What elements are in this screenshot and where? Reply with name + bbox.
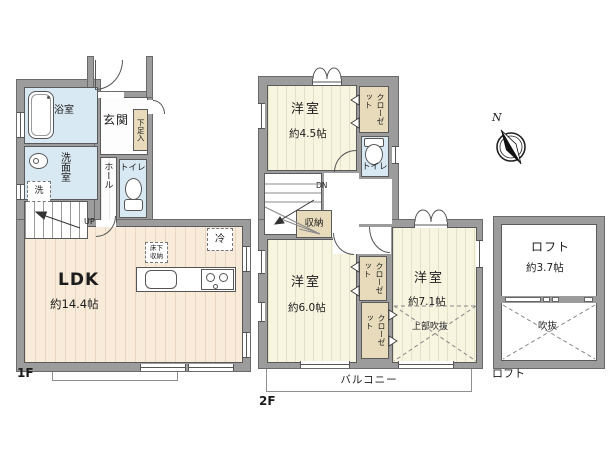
window	[188, 364, 234, 371]
washer-label: 洗	[34, 186, 43, 196]
toilet-1f-label: トイレ	[120, 164, 146, 174]
balcony-area: バルコニー	[266, 368, 472, 392]
void-above-label: 上部吹抜	[410, 322, 450, 332]
bath-label: 浴室	[54, 105, 74, 117]
washer-box: 洗	[27, 181, 51, 202]
burner-icon	[213, 284, 218, 289]
window	[17, 184, 24, 200]
shoe-cabinet: 下足入	[133, 109, 148, 151]
stairs-up-label: UP	[84, 217, 95, 226]
toilet-2f-label: トイレ	[362, 163, 388, 173]
burner-icon	[206, 273, 215, 282]
window	[414, 222, 448, 228]
window	[476, 240, 483, 268]
window	[17, 112, 24, 138]
closet-b: クローゼット	[359, 256, 387, 301]
door-arc-entry	[153, 100, 165, 114]
bath-drain-icon	[47, 96, 50, 99]
stairs-1f	[24, 201, 88, 239]
closet-c: クローゼット	[361, 302, 389, 359]
loft-void-label: 吹抜	[536, 322, 559, 333]
bedroom-b-size: 約6.0帖	[288, 302, 326, 314]
bedroom-c-size: 約7.1帖	[408, 296, 446, 308]
closet-c-label: クローゼット	[363, 314, 387, 348]
porch-wall	[147, 57, 152, 97]
landing-2f	[359, 179, 392, 224]
door-opening	[98, 92, 124, 98]
loft-divider-opening	[505, 297, 541, 302]
floor1-label: 1F	[17, 367, 34, 381]
loft-divider-post	[543, 297, 550, 302]
ldk-name-label: LDK	[58, 271, 99, 291]
compass-icon	[497, 130, 525, 164]
floor2-label: 2F	[259, 395, 276, 409]
bedroom-b-name: 洋室	[291, 276, 321, 291]
ldk-size-label: 約14.4帖	[50, 298, 99, 311]
bedroom-a-size: 約4.5帖	[289, 128, 327, 140]
room-bedroom-b	[267, 239, 357, 363]
loft-divider-opening	[584, 297, 593, 302]
hall-label: ホール	[102, 162, 112, 200]
loft-size-label: 約3.7帖	[526, 262, 564, 274]
closet-a-label: クローゼット	[362, 93, 386, 127]
floor-plan: 洗 下足入 床下 収納 冷 浴室 洗面室 玄関 ホール トイレ UP LDK 約…	[0, 0, 614, 460]
closet-b-label: クローゼット	[361, 262, 385, 296]
floor-storage-label: 床下 収納	[150, 245, 163, 261]
window	[300, 361, 350, 368]
loft-name-label: ロフト	[531, 241, 570, 255]
washbasin-faucet-icon	[33, 158, 39, 164]
loft-divider-post	[552, 297, 559, 302]
fridge-box: 冷	[207, 228, 233, 251]
bedroom-c-name: 洋室	[414, 272, 444, 287]
washroom-label: 洗面室	[58, 152, 70, 196]
window	[258, 302, 265, 322]
window	[140, 364, 186, 371]
entrance-label: 玄関	[103, 114, 129, 128]
window	[312, 79, 342, 85]
bathtub-inner	[31, 94, 51, 136]
closet-a: クローゼット	[359, 86, 389, 133]
door-leaf	[95, 60, 96, 90]
window	[398, 361, 454, 368]
kitchen-sink-icon	[145, 270, 177, 289]
bedroom-a-name: 洋室	[291, 103, 321, 118]
window	[258, 103, 265, 129]
window	[243, 246, 250, 272]
window	[243, 332, 250, 358]
window	[392, 146, 399, 164]
toilet-tank-icon	[124, 199, 143, 211]
window	[258, 250, 265, 274]
compass-north-label: N	[492, 112, 502, 125]
burner-icon	[219, 273, 228, 282]
room-bedroom-c	[392, 227, 477, 363]
storage-label: 収納	[304, 219, 323, 230]
door-arc-front	[95, 60, 123, 90]
loft-floor-label: ロフト	[492, 368, 525, 381]
toilet-bowl-icon	[125, 178, 142, 200]
shoe-cabinet-label: 下足入	[137, 119, 145, 142]
balcony-label: バルコニー	[340, 374, 397, 386]
storage-2f: 収納	[296, 210, 332, 238]
stairs-down-label: DN	[316, 182, 327, 191]
floor-storage-box: 床下 収納	[145, 242, 168, 263]
fridge-label: 冷	[215, 234, 225, 246]
